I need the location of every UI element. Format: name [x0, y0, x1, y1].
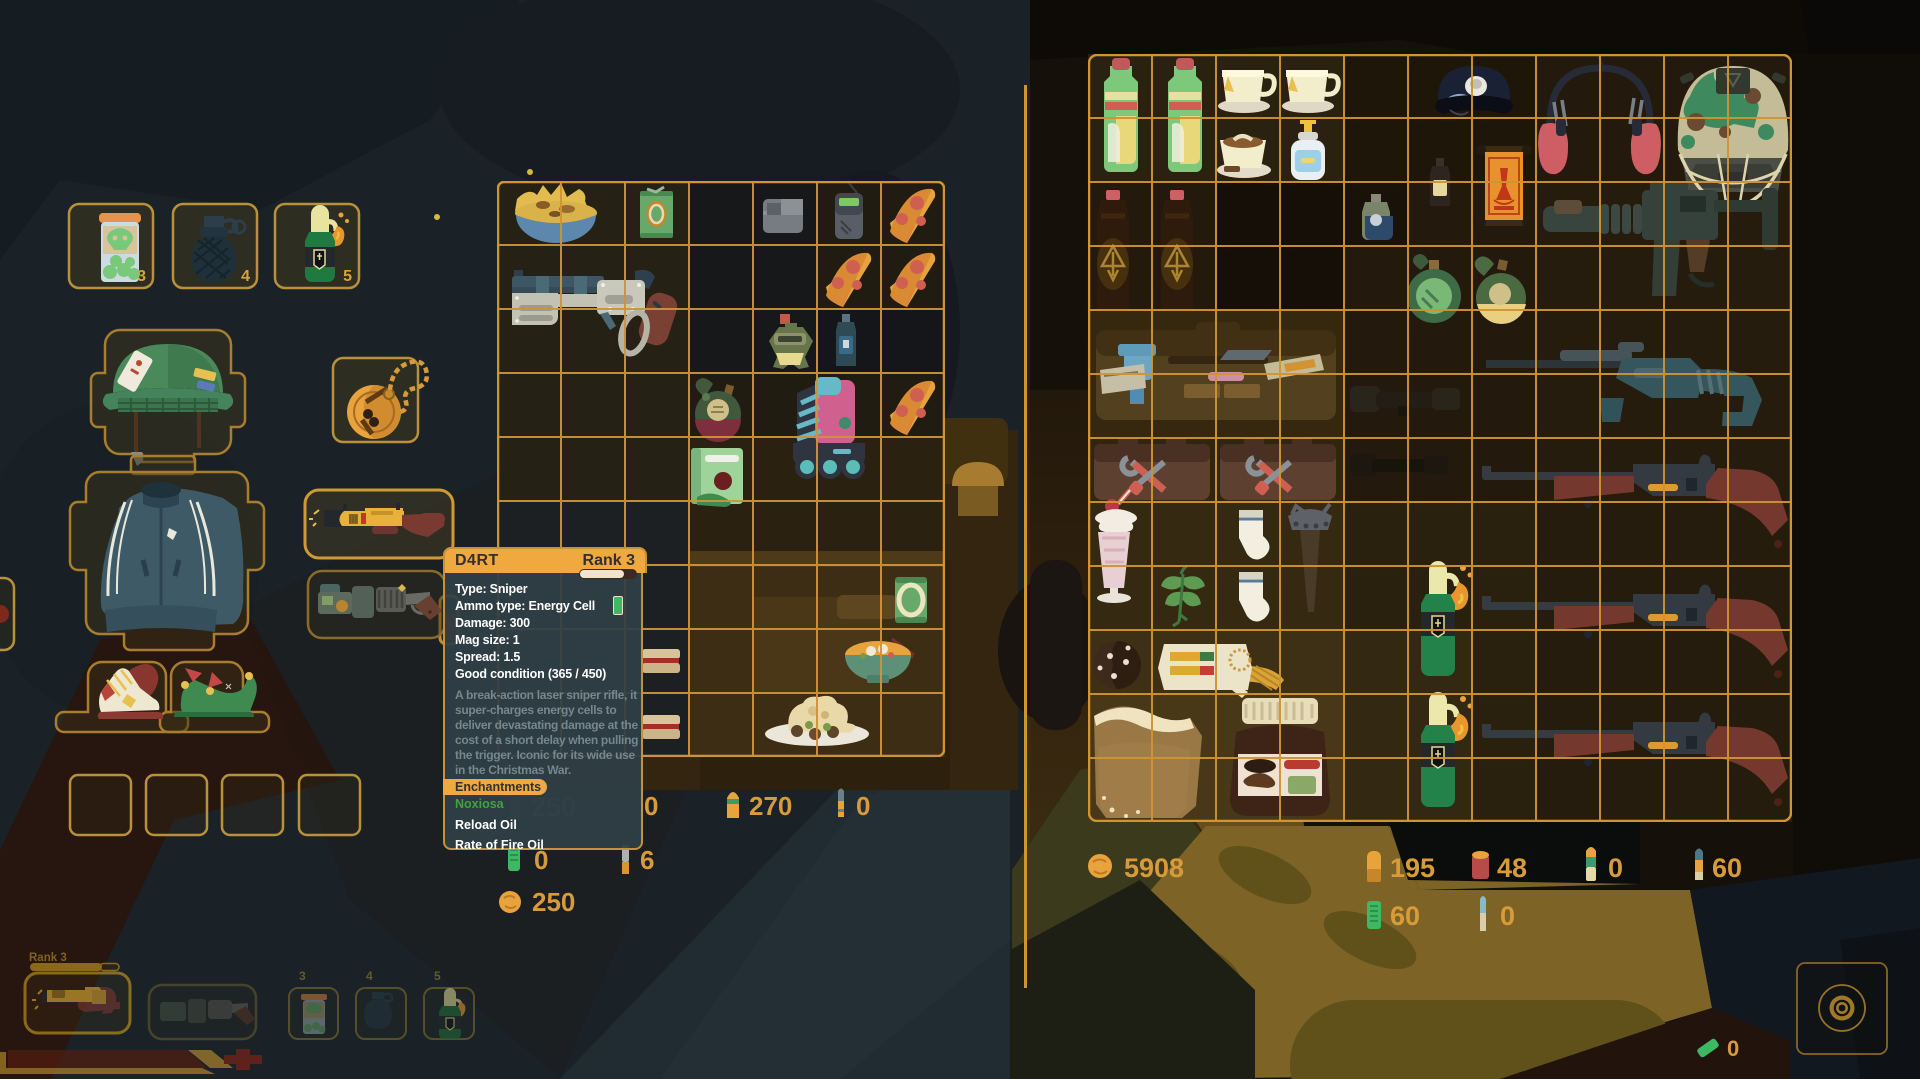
- svg-text:0: 0: [1608, 853, 1623, 883]
- svg-text:4: 4: [241, 268, 250, 285]
- svg-text:5908: 5908: [1124, 853, 1184, 883]
- svg-text:0: 0: [644, 791, 658, 821]
- svg-text:0: 0: [1500, 901, 1515, 931]
- svg-text:3: 3: [137, 268, 146, 285]
- svg-text:60: 60: [1712, 853, 1742, 883]
- svg-text:195: 195: [1390, 853, 1435, 883]
- svg-text:0: 0: [856, 791, 870, 821]
- svg-text:250: 250: [532, 887, 575, 917]
- svg-text:270: 270: [749, 791, 792, 821]
- svg-text:48: 48: [1497, 853, 1527, 883]
- svg-text:5: 5: [343, 268, 352, 285]
- svg-text:0: 0: [1727, 1036, 1739, 1061]
- svg-text:60: 60: [1390, 901, 1420, 931]
- svg-text:6: 6: [640, 845, 654, 875]
